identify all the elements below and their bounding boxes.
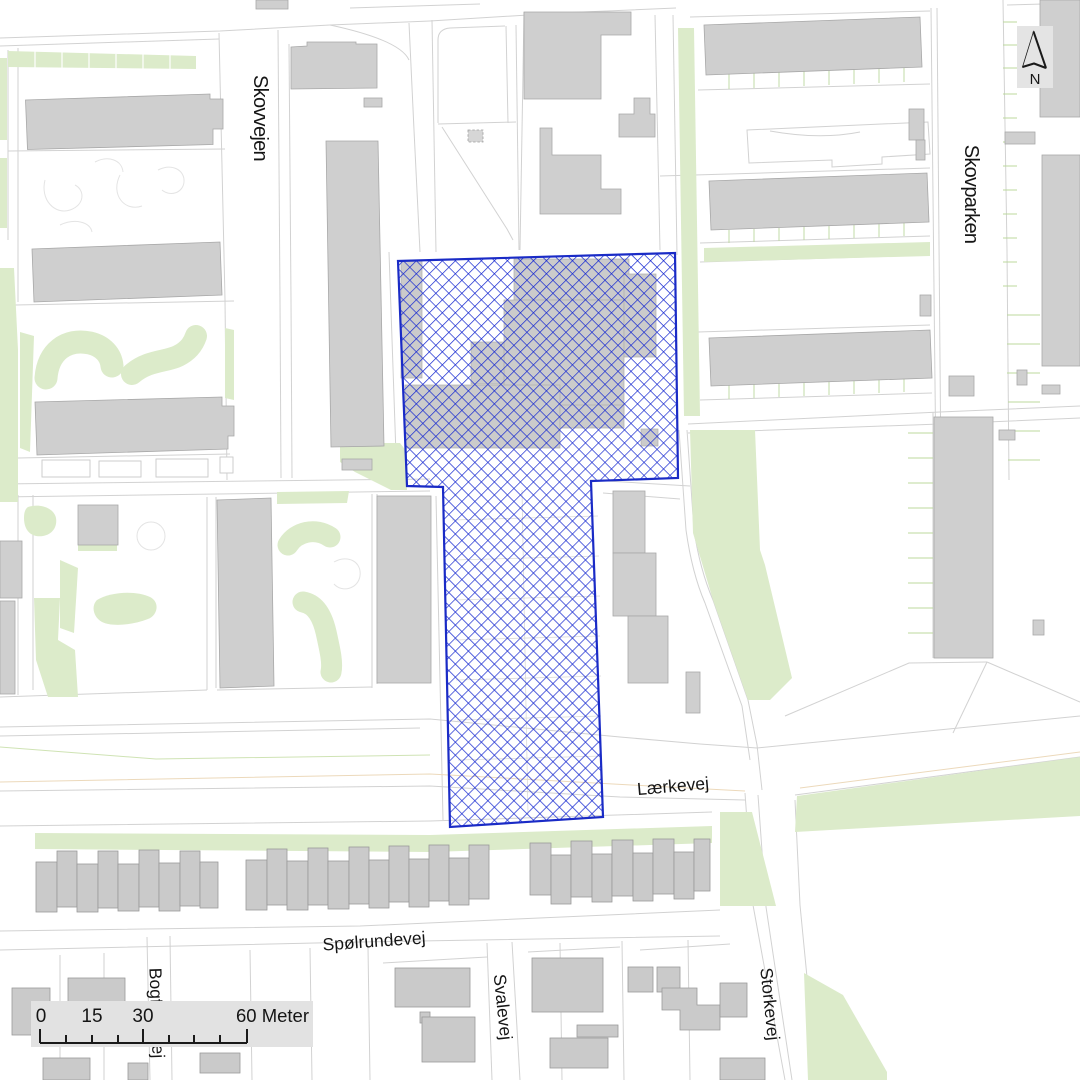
svg-text:0: 0 bbox=[36, 1006, 47, 1027]
svg-text:N: N bbox=[1030, 71, 1041, 88]
svg-text:15: 15 bbox=[81, 1006, 102, 1027]
svg-text:Skovvejen: Skovvejen bbox=[249, 75, 271, 161]
svg-text:60 Meter: 60 Meter bbox=[236, 1005, 309, 1026]
svg-text:Skovparken: Skovparken bbox=[960, 145, 982, 244]
svg-text:30: 30 bbox=[132, 1006, 153, 1027]
